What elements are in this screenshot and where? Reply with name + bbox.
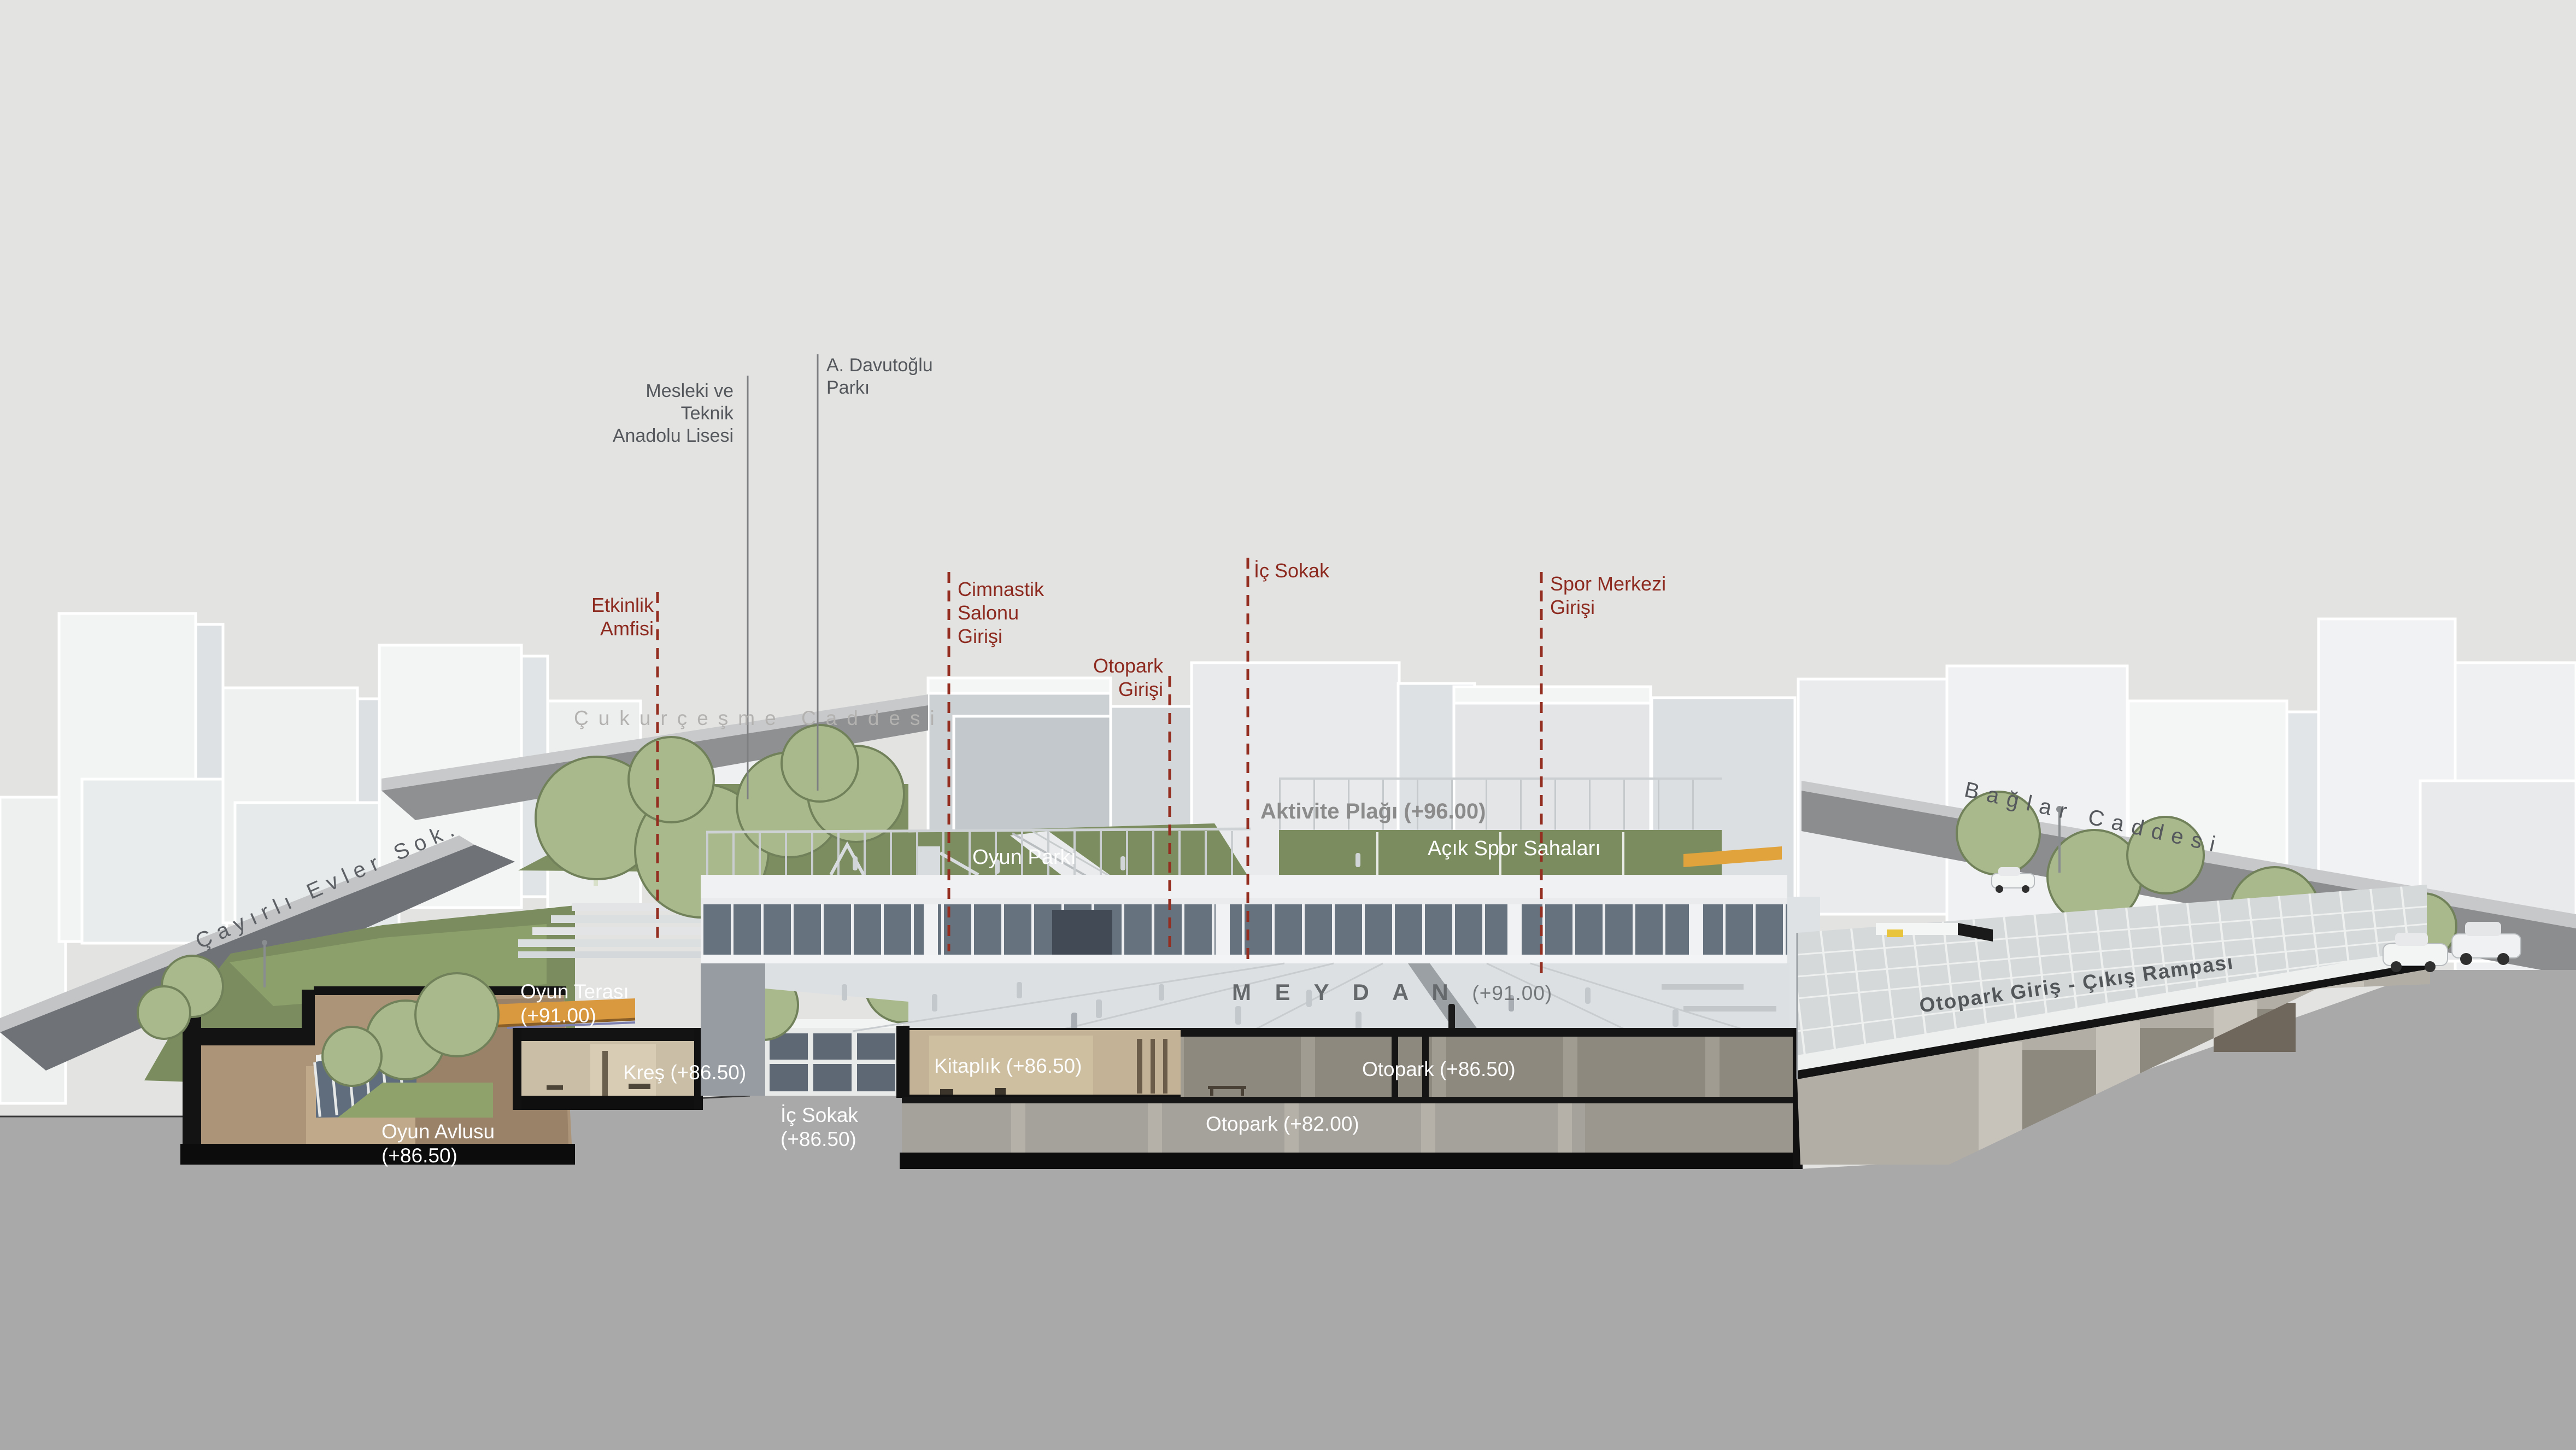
label-kres: Kreş (+86.50) [623,1061,746,1085]
plaza-slab [701,955,1789,963]
label-oyun-terasi: Oyun Terası (+91.00) [520,980,629,1028]
label-ic-sokak-alt: İç Sokak (+86.50) [781,1103,858,1152]
meydan-title: M E Y D A N [1232,979,1457,1005]
label-mesleki-lisesi: Mesleki ve Teknik Anadolu Lisesi [613,380,734,447]
label-cukurcesme-caddesi: Çukurçeşme Caddesi [574,706,944,730]
barrier-gate [1887,929,1903,937]
label-cimnastik-girisi: Cimnastik Salonu Girişi [958,577,1044,648]
entry-door [1052,910,1112,955]
label-davutoglu-parki: A. Davutoğlu Parkı [826,354,933,399]
label-oyun-avlusu: Oyun Avlusu (+86.50) [382,1120,495,1168]
label-etkinlik-amfisi: Etkinlik Amfisi [591,593,654,640]
label-acik-spor-sahalari: Açık Spor Sahaları [1428,837,1601,862]
label-otopark-82: Otopark (+82.00) [1206,1112,1359,1136]
meydan-level: (+91.00) [1472,982,1552,1004]
playground-tower [918,846,940,875]
section-perspective-scene: Mesleki ve Teknik Anadolu Lisesi A. Davu… [0,0,2576,1450]
label-spor-merkezi-girisi: Spor Merkezi Girişi [1550,572,1666,619]
label-otopark-86: Otopark (+86.50) [1362,1057,1516,1081]
label-aktivite-plagi: Aktivite Plağı (+96.00) [1260,798,1486,825]
section-illustration [0,0,2576,1450]
plaza-bench [1662,984,1744,990]
label-otopark-girisi: Otopark Girişi [1093,654,1163,701]
deck-fascia [701,875,1787,898]
label-meydan: M E Y D A N (+91.00) [1232,979,1552,1006]
label-ic-sokak-ust: İç Sokak [1254,559,1329,582]
plaza-bench [1683,1006,1776,1012]
label-oyun-parki: Oyun Parkı [972,845,1076,870]
section-cut [896,1026,1803,1169]
label-kitaplik: Kitaplık (+86.50) [934,1054,1082,1078]
